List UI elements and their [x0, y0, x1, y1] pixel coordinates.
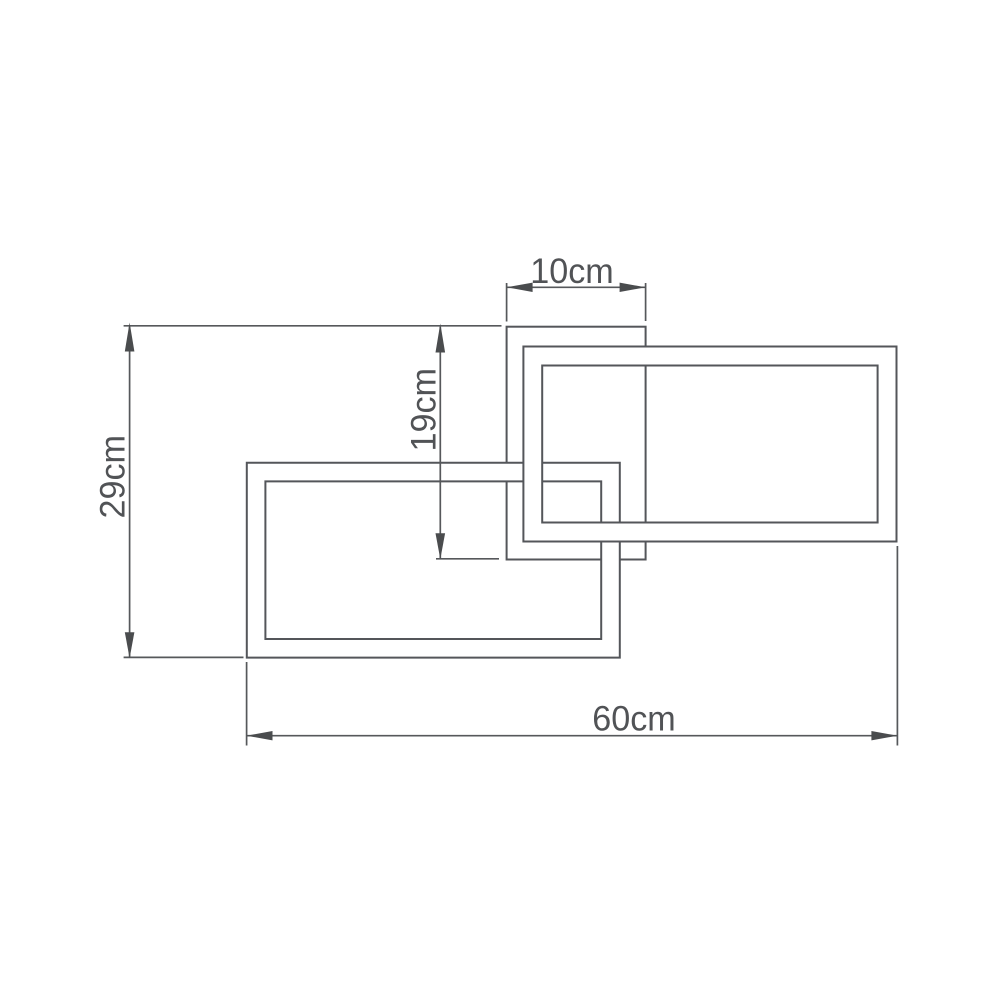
svg-text:60cm: 60cm [592, 699, 676, 738]
svg-text:19cm: 19cm [405, 368, 444, 452]
svg-text:29cm: 29cm [94, 435, 133, 519]
svg-text:10cm: 10cm [530, 252, 614, 291]
